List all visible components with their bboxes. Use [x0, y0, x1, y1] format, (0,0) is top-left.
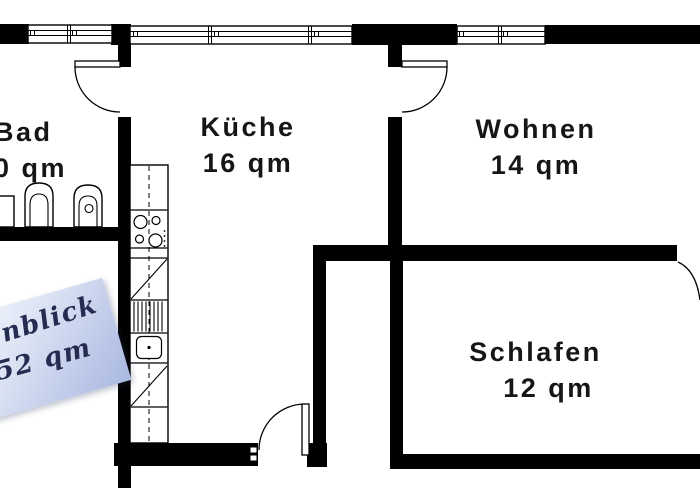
- room-label-wohnen: Wohnen 14 qm: [461, 114, 611, 180]
- window-icon: [130, 26, 352, 44]
- schlafen-door-icon: [678, 262, 700, 300]
- washbasin-icon: [0, 196, 14, 227]
- window-icon: [28, 25, 112, 43]
- room-label-kueche: Küche 16 qm: [173, 112, 323, 178]
- room-name: Bad: [0, 117, 53, 147]
- room-name: Küche: [200, 112, 295, 142]
- room-name: Wohnen: [476, 114, 597, 144]
- bathroom-fixtures: [0, 183, 102, 227]
- room-area: 12 qm: [458, 373, 613, 403]
- room-label-bad: Bad 0 qm: [0, 117, 67, 183]
- room-area: 16 qm: [173, 148, 323, 178]
- room-area: 0 qm: [0, 153, 67, 183]
- room-label-schlafen: Schlafen 12 qm: [458, 337, 613, 403]
- kueche-door-icon: [259, 404, 309, 455]
- kitchen-unit-icon: [130, 165, 168, 443]
- window-icon: [457, 26, 545, 44]
- wohnen-door-icon: [402, 61, 447, 112]
- room-area: 14 qm: [461, 150, 611, 180]
- floor-plan-drawing: [0, 0, 700, 500]
- room-name: Schlafen: [469, 337, 602, 367]
- toilet-icon: [25, 183, 53, 227]
- sink-icon: [137, 337, 162, 359]
- bad-door-icon: [75, 61, 120, 112]
- floor-plan: Bad 0 qm Küche 16 qm Wohnen 14 qm Schlaf…: [0, 0, 700, 500]
- bidet-icon: [74, 185, 102, 227]
